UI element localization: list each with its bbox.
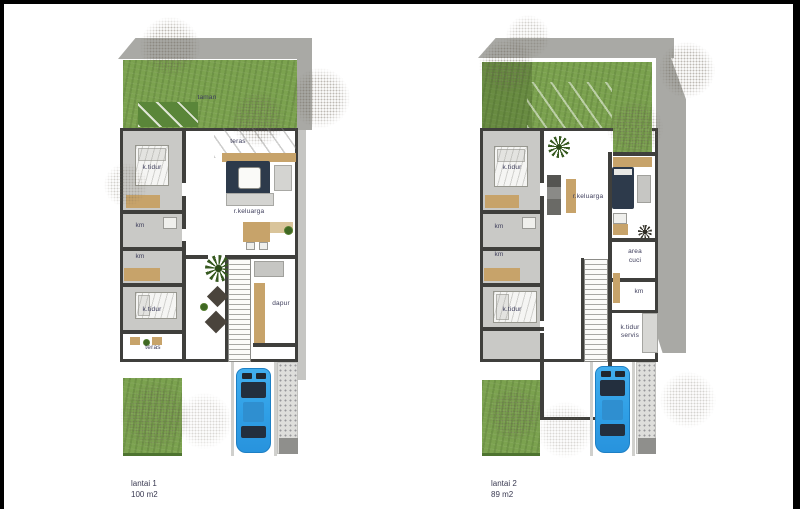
tree xyxy=(104,163,148,207)
tree xyxy=(659,42,715,98)
armchair xyxy=(274,165,292,191)
room-label-ktidur-servis: servis xyxy=(621,333,639,340)
wall-km1-top xyxy=(120,210,186,214)
bathroom-fixture xyxy=(163,217,177,229)
room-label-area-cuci: cuci xyxy=(629,258,641,265)
room-label-km: km xyxy=(135,223,144,230)
wall-bedroom2-top xyxy=(480,283,544,287)
car-rear-window xyxy=(241,426,266,438)
tree xyxy=(607,100,663,156)
tree xyxy=(537,402,593,458)
driveway-edge xyxy=(632,362,635,456)
tree xyxy=(486,386,542,442)
small-plant xyxy=(200,303,208,311)
car-windshield xyxy=(600,380,625,396)
car-sunroof xyxy=(242,373,252,379)
room-label-ktidur: k.tidur xyxy=(502,307,521,314)
tree xyxy=(660,372,716,428)
room-label-ktidur: k.tidur xyxy=(502,165,521,172)
car-windshield xyxy=(241,382,266,398)
frame-top xyxy=(0,0,800,4)
palm-plant xyxy=(548,136,570,158)
coffee-table xyxy=(238,167,261,189)
door-gap xyxy=(540,183,544,196)
bathroom-fixture xyxy=(522,217,536,229)
wardrobe xyxy=(613,157,652,167)
tree xyxy=(290,68,350,128)
paving-ramp xyxy=(279,438,298,454)
room-label-km: km xyxy=(494,252,503,259)
room-label-area-cuci: area xyxy=(628,249,642,256)
wall-hall-stub xyxy=(182,255,208,259)
door-gap xyxy=(182,229,186,241)
frame-left xyxy=(0,0,4,509)
car-rear-window xyxy=(600,424,625,436)
side-wall-strip xyxy=(297,130,306,380)
caption-lantai-2-area: 89 m2 xyxy=(491,491,513,499)
caption-lantai-1: lantai 1 xyxy=(131,480,157,488)
car xyxy=(595,366,630,453)
floorplan-page: taman teras k.tidur km km r.keluarga dap… xyxy=(0,0,800,523)
room-label-km: km xyxy=(634,289,643,296)
wall-km1-top xyxy=(480,210,544,214)
garden-ramp-stripes xyxy=(138,102,198,127)
caption-lantai-2: lantai 2 xyxy=(491,480,517,488)
service-bed xyxy=(642,313,658,353)
room-label-ktidur: k.tidur xyxy=(142,307,161,314)
staircase xyxy=(584,259,608,362)
sofa-bench xyxy=(226,193,274,206)
wardrobe xyxy=(485,195,519,208)
dining-chair xyxy=(259,242,268,250)
roof-garden-slats xyxy=(527,82,612,128)
door-gap xyxy=(182,183,186,196)
teras-chair xyxy=(130,337,140,345)
room-label-teras: teras xyxy=(230,139,245,146)
desk xyxy=(637,175,651,203)
wall-teras2-top xyxy=(120,330,186,334)
car-roof xyxy=(602,400,623,420)
tv-cabinet xyxy=(547,175,561,215)
wall-km2-top xyxy=(120,247,186,251)
caption-lantai-1-area: 100 m2 xyxy=(131,491,158,499)
dresser xyxy=(613,213,627,224)
bed-pillows xyxy=(614,169,632,175)
driveway-edge xyxy=(590,362,593,456)
room-label-rkeluarga: r.keluarga xyxy=(573,194,604,201)
wall-kitchen-bottom xyxy=(253,343,298,347)
kitchen-counter xyxy=(254,283,265,343)
staircase xyxy=(228,259,251,362)
kitchen-appliance xyxy=(254,261,284,277)
room-label-ktidur-servis: k.tidur xyxy=(620,325,639,332)
wall-areacuci-top xyxy=(608,238,658,242)
small-plant xyxy=(284,226,293,235)
room-label-km: km xyxy=(135,254,144,261)
wall-vertical-main xyxy=(182,128,186,362)
frame-right xyxy=(793,0,800,509)
tree xyxy=(506,15,550,59)
roof-band-right xyxy=(656,58,686,353)
tree xyxy=(176,393,232,449)
laundry-counter xyxy=(613,273,620,303)
room-label-rkeluarga: r.keluarga xyxy=(234,209,265,216)
dark-plant xyxy=(638,225,652,239)
wall-bedroom2-bottom xyxy=(480,327,544,331)
room-label-km: km xyxy=(494,224,503,231)
dresser-wood xyxy=(613,224,628,235)
driveway-edge xyxy=(231,362,234,456)
wall-km2-top xyxy=(480,247,544,251)
paving-ramp xyxy=(638,438,656,454)
car-sunroof xyxy=(601,371,611,377)
room-label-taman: taman xyxy=(197,95,216,102)
car-sunroof xyxy=(256,373,266,379)
tree xyxy=(140,17,200,77)
room-label-dapur: dapur xyxy=(272,301,290,308)
bathroom-vanity xyxy=(124,268,160,281)
room-label-teras: teras xyxy=(145,345,160,352)
floorplan-lantai-1: taman teras k.tidur km km r.keluarga dap… xyxy=(118,33,312,458)
floorplan-lantai-2: k.tidur km km r.keluarga area cuci km k.… xyxy=(478,33,693,458)
room-label-ktidur: k.tidur xyxy=(142,165,161,172)
car-sunroof xyxy=(615,371,625,377)
car xyxy=(236,368,271,453)
dining-table xyxy=(243,222,270,242)
wall-bedroom2-top xyxy=(120,283,186,287)
car-roof xyxy=(243,402,264,422)
dining-chair xyxy=(246,242,255,250)
bathroom-vanity xyxy=(484,268,520,281)
